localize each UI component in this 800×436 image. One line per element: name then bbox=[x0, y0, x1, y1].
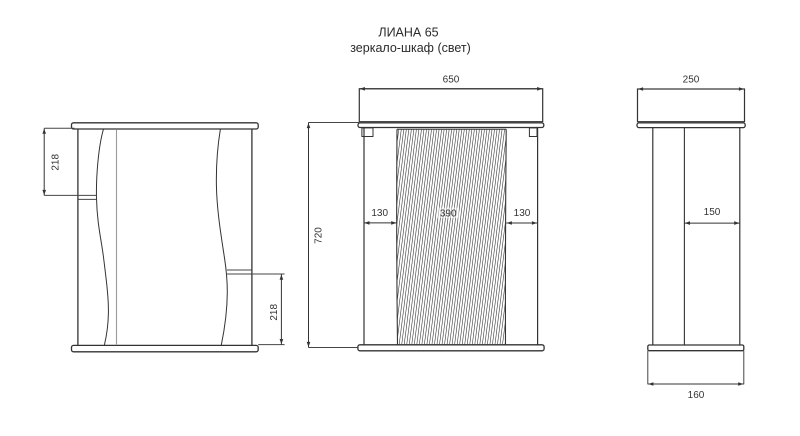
svg-text:250: 250 bbox=[683, 75, 700, 86]
svg-text:720: 720 bbox=[314, 227, 325, 244]
svg-text:150: 150 bbox=[704, 207, 721, 218]
svg-text:218: 218 bbox=[51, 154, 62, 171]
svg-text:ЛИАНА 65: ЛИАНА 65 bbox=[378, 26, 438, 40]
svg-text:218: 218 bbox=[269, 304, 280, 321]
svg-text:160: 160 bbox=[688, 390, 705, 401]
svg-text:650: 650 bbox=[443, 75, 460, 86]
svg-text:130: 130 bbox=[514, 208, 531, 219]
svg-text:130: 130 bbox=[371, 208, 388, 219]
svg-text:зеркало-шкаф (свет): зеркало-шкаф (свет) bbox=[350, 41, 471, 55]
svg-text:390: 390 bbox=[440, 209, 457, 220]
